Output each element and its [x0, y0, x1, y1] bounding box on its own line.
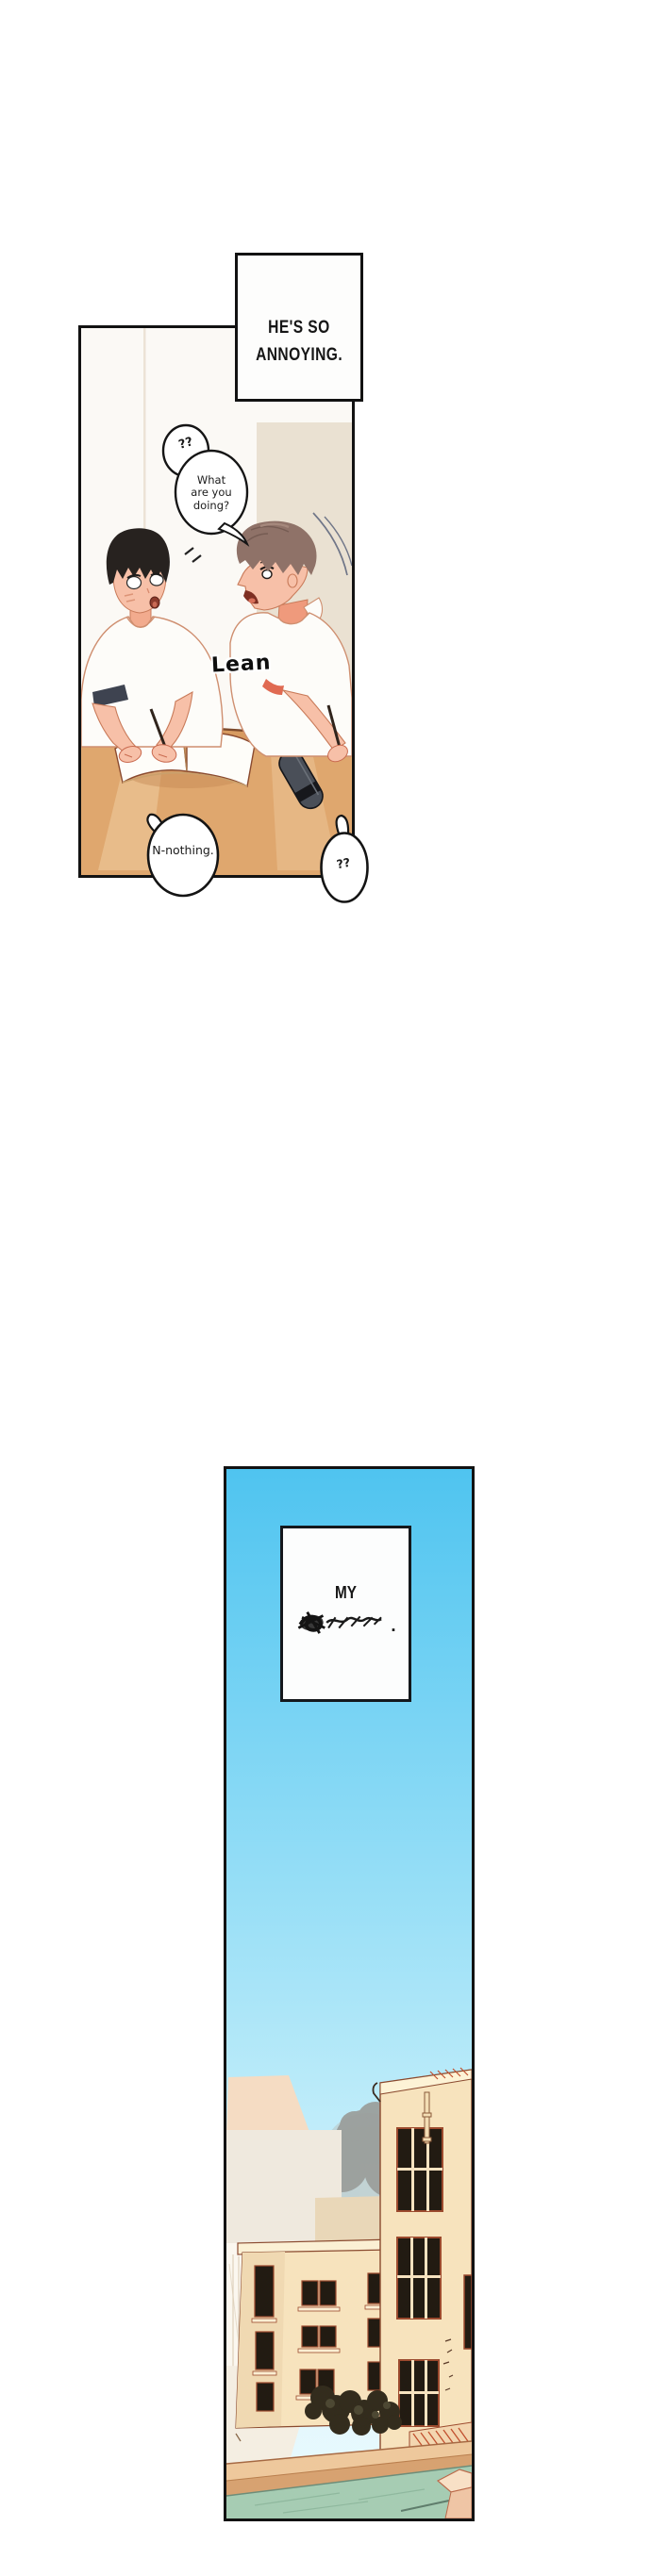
- speech-bubble-question: ??: [318, 813, 373, 907]
- narration-line: HE'S SO: [268, 314, 329, 341]
- narration-box-my: MY .: [280, 1526, 411, 1702]
- panel-sky-buildings: MY .: [224, 1466, 475, 2521]
- comic-page: HE'S SO ANNOYING. ?? What are you doing?…: [0, 0, 651, 2576]
- narration-box-annoying: HE'S SO ANNOYING.: [235, 253, 363, 402]
- censored-word: .: [295, 1609, 396, 1635]
- censored-word-scribble: [295, 1609, 390, 1635]
- panel-classroom: [78, 325, 355, 878]
- narration-line: MY: [335, 1583, 357, 1603]
- narration-line: ANNOYING.: [256, 341, 342, 369]
- scribble-period: .: [391, 1618, 396, 1635]
- speech-bubble-what-are-you-doing: ?? What are you doing?: [149, 412, 272, 555]
- sfx-lean: Lean: [210, 651, 272, 677]
- classroom-scene: [81, 328, 352, 875]
- buildings-scene: [226, 1972, 472, 2518]
- speech-text: N-nothing.: [142, 843, 225, 857]
- speech-bubble-nothing: N-nothing.: [142, 809, 226, 901]
- speech-text: What are you doing?: [175, 467, 247, 520]
- gutter-bracket: [374, 2083, 381, 2102]
